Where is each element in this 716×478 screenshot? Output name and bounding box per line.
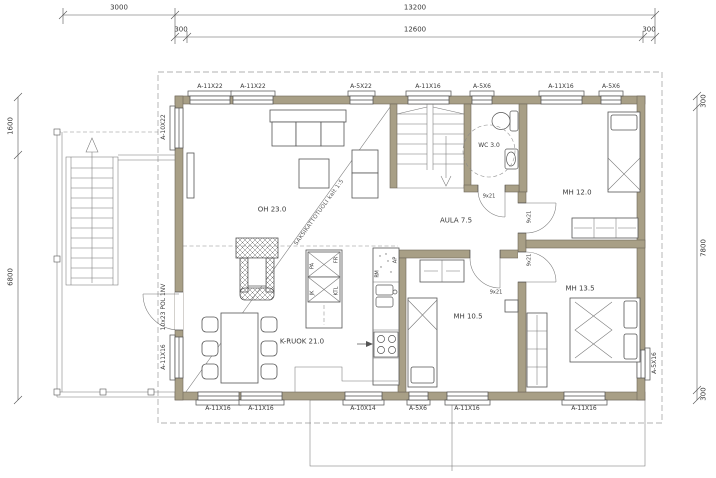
tv (187, 153, 194, 198)
vent-arrow-icon (366, 341, 373, 347)
bedroom-a-door-label: 9x21 (528, 211, 533, 224)
appliance-label-pm: PM (376, 270, 381, 277)
wardrobe-bedroom-a (572, 218, 638, 238)
window-label-top-1: A-11X22 (197, 84, 223, 90)
window-label-top-3: A-5X22 (350, 84, 372, 90)
window-label-bottom-5: A-11X16 (454, 406, 480, 412)
toilet (492, 113, 510, 130)
room-label-bedroom-c: MH 10.5 (453, 314, 482, 321)
wc-door (478, 185, 505, 217)
window-label-bottom-1: A-11X16 (205, 406, 231, 412)
dim-right-top: 300 (701, 94, 708, 107)
window-label-top-7: A-5X6 (602, 84, 620, 90)
room-label-living: OH 23.0 (258, 207, 287, 214)
window-label-bottom-4: A-5X6 (409, 406, 427, 412)
fireplace (236, 238, 278, 300)
bed-bedroom-b (570, 298, 640, 362)
window-label-left-2: A-11X16 (161, 344, 167, 370)
room-label-kitchen-dining: K-RUOK 21.0 (280, 339, 324, 346)
dim-right-bottom: 300 (701, 387, 708, 400)
doors (143, 185, 556, 330)
window-label-top-6: A-11X16 (548, 84, 574, 90)
window-label-bottom-3: A-10X14 (350, 406, 376, 412)
appliance-label-ap: AP (394, 257, 399, 263)
entry-door-label: 10x23 POL 1NV (161, 284, 167, 331)
stove (374, 332, 398, 357)
window-label-top-5: A-5X6 (473, 84, 491, 90)
bedroom-c-door-label: 9x21 (490, 291, 503, 296)
stairs-up-arrow-icon (86, 138, 98, 152)
bed-bedroom-a (608, 112, 640, 192)
dim-body-width: 12600 (404, 27, 426, 34)
dim-left-lower: 6800 (8, 268, 15, 286)
closet-bedroom-c (420, 260, 464, 282)
room-label-wc: WC 3.0 (478, 143, 500, 149)
window-label-bottom-2: A-11X16 (248, 406, 274, 412)
window-label-right-1: A-5X16 (652, 352, 658, 374)
window-label-left-1: A-10X22 (161, 114, 167, 140)
room-label-bedroom-b: MH 13.5 (565, 286, 594, 293)
bed-bedroom-c (408, 298, 437, 387)
appliance-label-pa: PA (311, 263, 316, 269)
dim-porch-width: 3000 (110, 5, 128, 12)
bedroom-b-door-label: 9x21 (528, 254, 533, 267)
nightstand (505, 300, 518, 312)
bedroom-b-door (518, 252, 556, 282)
room-label-hall: AULA 7.5 (440, 218, 472, 225)
railing-posts (54, 129, 154, 395)
bedroom-a-door (518, 203, 556, 233)
dim-left-upper: 1600 (8, 117, 15, 135)
floor-plan: 3000 13200 300 12600 300 1600 6800 300 7… (0, 0, 716, 478)
wardrobe-bedroom-b (527, 313, 547, 387)
window-label-top-2: A-11X22 (240, 84, 266, 90)
staircase (397, 104, 464, 188)
armchair (352, 150, 378, 198)
toilet-tank (510, 111, 518, 131)
sofa (270, 110, 346, 146)
window-label-bottom-6: A-11X16 (571, 406, 597, 412)
room-label-bedroom-a: MH 12.0 (562, 190, 591, 197)
appliance-label-jk: JK (311, 291, 316, 296)
dining-set (202, 313, 277, 383)
wc-door-label: 9x21 (483, 195, 496, 200)
dim-wall-left: 300 (174, 27, 187, 34)
window-label-top-4: A-11X16 (415, 84, 441, 90)
bedroom-c-door (470, 250, 500, 288)
dim-wall-right: 300 (642, 27, 655, 34)
dim-overall-width: 13200 (404, 5, 426, 12)
appliance-label-ktl: KTL (335, 287, 340, 296)
dim-right-mid: 7800 (701, 239, 708, 257)
entrance-deck (54, 129, 175, 397)
appliance-label-fr: FR (335, 257, 340, 263)
coffee-table (299, 159, 329, 188)
